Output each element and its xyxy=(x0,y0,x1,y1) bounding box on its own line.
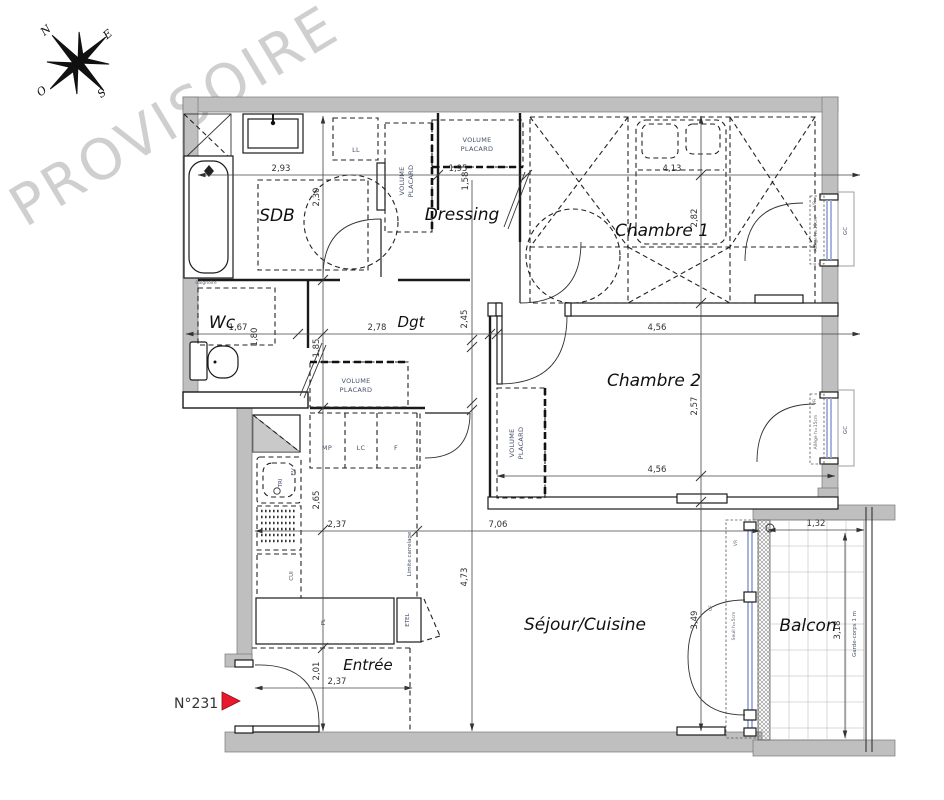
kitchen-tri-label: TRI xyxy=(278,478,284,488)
room-label-wc: Wc xyxy=(209,313,236,333)
compass-west-label: O xyxy=(34,83,49,99)
kitchen-ev-label: EV xyxy=(291,468,297,475)
allege-label: Allège h=15cm xyxy=(812,217,819,252)
bathtub xyxy=(184,156,233,278)
dim-sdb-height: 2,30 xyxy=(312,188,322,207)
soffit-corner-kitchen xyxy=(253,415,300,452)
placard-label: VOLUME xyxy=(398,166,406,195)
dim-sejour-height: 4,73 xyxy=(460,568,470,587)
cf-label: CF xyxy=(708,605,714,611)
dim-chambre2-width-bottom: 4,56 xyxy=(648,465,667,475)
dim-balcon-width: 1,32 xyxy=(807,519,826,529)
vr-label: VR xyxy=(812,399,818,405)
dim-entree-height: 2,01 xyxy=(312,662,322,681)
etel-swing-mark xyxy=(420,599,440,642)
gc-label: GC xyxy=(843,227,849,235)
dim-kitchen-width: 2,37 xyxy=(328,520,347,530)
dim-dgt-width: 2,78 xyxy=(368,323,387,333)
room-label-dressing: Dressing xyxy=(425,205,500,225)
dim-chambre2-height: 2,57 xyxy=(690,397,700,416)
closet-row-mp-lc-f xyxy=(310,413,420,468)
seuil-label: Seuil h=5cm xyxy=(731,612,737,641)
room-label-sdb: SDB xyxy=(259,206,295,226)
dim-chambre2-width-top: 4,56 xyxy=(648,323,667,333)
entry-door xyxy=(235,660,319,733)
gc-label: GC xyxy=(843,426,849,434)
placard-label: PLACARD xyxy=(517,427,525,460)
floor-plan-page: PROVISOIRE N E O S xyxy=(0,0,944,800)
dim-dgt-height2: 2,45 xyxy=(460,310,470,329)
bathtub-label: Baignoire xyxy=(195,280,217,286)
garde-corps-label: Garde-corps 1 m xyxy=(852,611,858,657)
limite-carrelage-label: Limite carrelage xyxy=(407,531,413,576)
toilet xyxy=(190,342,238,380)
washbasin xyxy=(243,114,303,153)
cabinet-pl-label: PL xyxy=(321,618,327,625)
dgt-closet-door xyxy=(425,413,470,458)
placard-label: VOLUME xyxy=(341,377,370,385)
placard-label: VOLUME xyxy=(508,428,516,457)
sdb-door xyxy=(323,219,381,277)
dim-kitchen-height: 2,65 xyxy=(312,491,322,510)
dim-chambre1-width: 4,13 xyxy=(663,164,682,174)
dim-bay-height: 3,49 xyxy=(690,611,700,630)
unit-marker: N°231 xyxy=(174,692,240,712)
cabinet-etel-label: ETEL xyxy=(405,612,411,626)
dim-dressing-height: 1,58 xyxy=(461,172,471,191)
compass-rose: N E O S xyxy=(24,9,131,116)
placard-label: PLACARD xyxy=(407,165,415,198)
kitchen-worktop xyxy=(257,506,301,550)
closet-mp-label: MP xyxy=(322,444,332,452)
allege-label: Allège h=15cm xyxy=(812,415,819,450)
room-label-chambre2: Chambre 2 xyxy=(607,371,701,391)
washer-label: LL xyxy=(352,146,360,154)
placard-label: VOLUME xyxy=(462,136,491,144)
dim-wc-height: 1,80 xyxy=(250,328,260,347)
chambre2-door xyxy=(497,316,567,384)
placard-label: PLACARD xyxy=(340,386,373,394)
room-label-chambre1: Chambre 1 xyxy=(615,221,709,241)
compass-north-label: N xyxy=(37,22,54,39)
kitchen-cui-label: CUI xyxy=(289,571,295,581)
dim-sejour-width: 7,06 xyxy=(489,520,508,530)
vr-label: VR xyxy=(812,201,818,207)
unit-arrow-icon xyxy=(222,692,240,710)
unit-number-label: N°231 xyxy=(174,696,218,712)
room-label-balcon: Balcon xyxy=(779,616,836,636)
closet-f-label: F xyxy=(394,444,398,452)
closet-lc-label: LC xyxy=(357,444,366,452)
floor-plan-drawing: PROVISOIRE N E O S xyxy=(0,0,944,800)
room-label-dgt: Dgt xyxy=(398,313,426,331)
vr-label: VR xyxy=(733,540,739,546)
chambre1-window xyxy=(745,192,854,266)
radiator-chambre1 xyxy=(755,295,803,303)
chambre2-window xyxy=(757,390,854,466)
dim-entree-width: 2,37 xyxy=(328,677,347,687)
placard-label: PLACARD xyxy=(461,145,494,153)
dim-sdb-width: 2,93 xyxy=(272,164,291,174)
room-label-sejour: Séjour/Cuisine xyxy=(524,615,646,635)
dim-dgt-height: 1,85 xyxy=(312,339,322,358)
room-label-entree: Entrée xyxy=(343,656,393,674)
compass-south-label: S xyxy=(95,86,109,101)
